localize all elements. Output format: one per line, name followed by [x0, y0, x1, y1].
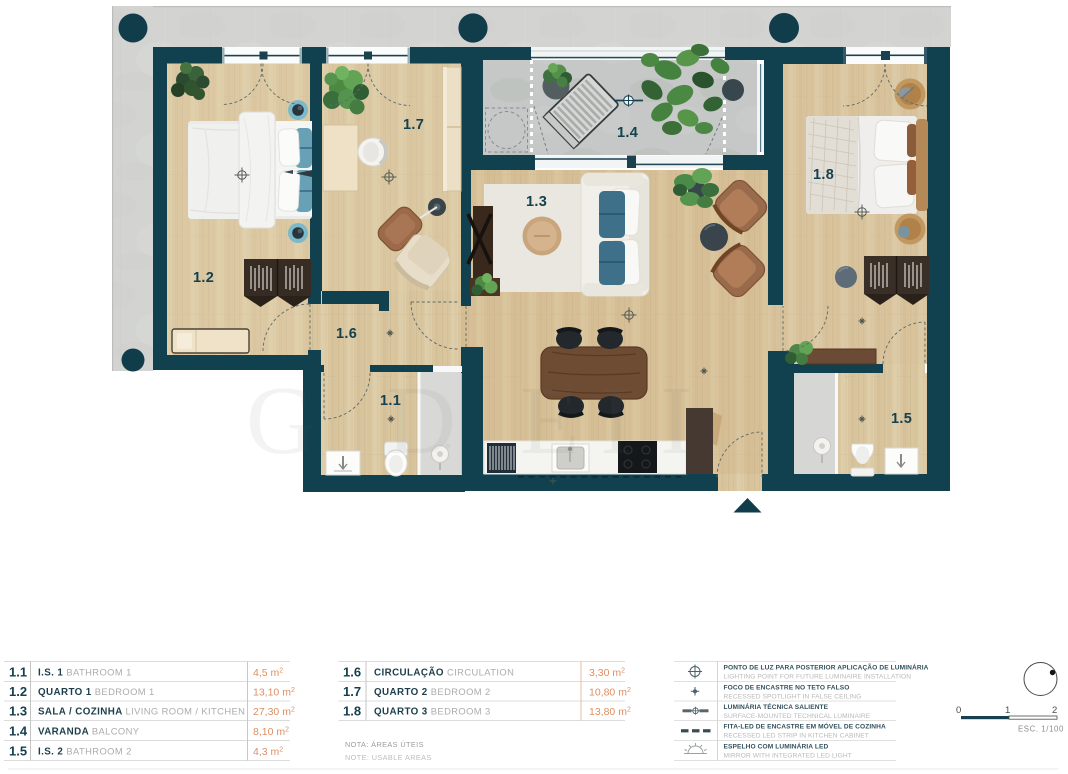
svg-text:4,5 m2: 4,5 m2 [253, 667, 283, 679]
svg-text:QUARTO 2 BEDROOM 2: QUARTO 2 BEDROOM 2 [374, 686, 491, 698]
svg-text:MIRROR WITH INTEGRATED LED LIG: MIRROR WITH INTEGRATED LED LIGHT [724, 753, 852, 760]
svg-text:1.8: 1.8 [813, 167, 834, 183]
svg-text:D: D [386, 367, 456, 474]
svg-text:I: I [600, 367, 632, 474]
svg-text:I.S. 1 BATHROOM 1: I.S. 1 BATHROOM 1 [38, 667, 132, 679]
svg-text:I.S. 2 BATHROOM 2: I.S. 2 BATHROOM 2 [38, 746, 132, 758]
svg-text:1.2: 1.2 [193, 270, 214, 286]
svg-text:1.1: 1.1 [9, 665, 27, 680]
svg-text:0: 0 [956, 705, 961, 716]
svg-text:10,80 m2: 10,80 m2 [589, 687, 631, 699]
svg-text:FITA-LED DE ENCASTRE EM MÓVEL: FITA-LED DE ENCASTRE EM MÓVEL DE COZINHA [724, 721, 887, 730]
svg-text:1.5: 1.5 [9, 744, 27, 759]
svg-text:CIRCULAÇÃO CIRCULATION: CIRCULAÇÃO CIRCULATION [374, 667, 514, 679]
svg-text:1.6: 1.6 [336, 326, 357, 342]
svg-text:LIGHTING POINT FOR FUTURE LUMI: LIGHTING POINT FOR FUTURE LUMINAIRE INST… [724, 674, 912, 681]
svg-text:1.3: 1.3 [526, 194, 547, 210]
svg-text:SALA / COZINHA LIVING ROOM / K: SALA / COZINHA LIVING ROOM / KITCHEN [38, 706, 245, 718]
svg-text:1.8: 1.8 [343, 704, 361, 719]
svg-text:NOTA: ÁREAS ÚTEIS: NOTA: ÁREAS ÚTEIS [345, 740, 424, 749]
svg-text:1.7: 1.7 [343, 684, 361, 699]
svg-text:8,10 m2: 8,10 m2 [253, 726, 289, 738]
svg-text:G: G [246, 367, 316, 474]
svg-text:PONTO DE LUZ PARA POSTERIOR AP: PONTO DE LUZ PARA POSTERIOR APLICAÇÃO DE… [724, 662, 929, 671]
svg-text:3,30 m2: 3,30 m2 [589, 667, 625, 679]
svg-text:RECESSED SPOTLIGHT IN FALSE CE: RECESSED SPOTLIGHT IN FALSE CEILING [724, 694, 862, 701]
svg-text:NOTE: USABLE AREAS: NOTE: USABLE AREAS [345, 753, 432, 762]
svg-text:27,30 m2: 27,30 m2 [253, 706, 295, 718]
svg-text:13,80 m2: 13,80 m2 [589, 706, 631, 718]
svg-text:QUARTO 3 BEDROOM 3: QUARTO 3 BEDROOM 3 [374, 706, 491, 718]
svg-text:LUMINÁRIA TÉCNICA SALIENTE: LUMINÁRIA TÉCNICA SALIENTE [724, 702, 829, 711]
svg-text:4,3 m2: 4,3 m2 [253, 746, 283, 758]
svg-text:2: 2 [1052, 705, 1057, 716]
svg-text:SURFACE-MOUNTED TECHNICAL LUMI: SURFACE-MOUNTED TECHNICAL LUMINAIRE [724, 713, 871, 720]
svg-text:ESPELHO COM LUMINÁRIA LED: ESPELHO COM LUMINÁRIA LED [724, 741, 829, 750]
svg-text:1: 1 [1005, 705, 1010, 716]
svg-text:1.2: 1.2 [9, 684, 27, 699]
svg-text:I: I [660, 367, 692, 474]
svg-text:1.6: 1.6 [343, 665, 361, 680]
svg-text:VARANDA BALCONY: VARANDA BALCONY [38, 726, 140, 738]
svg-text:13,10 m2: 13,10 m2 [253, 687, 295, 699]
svg-text:E: E [520, 367, 579, 474]
svg-text:ESC. 1/100: ESC. 1/100 [1018, 725, 1064, 734]
svg-text:1.7: 1.7 [403, 117, 424, 133]
svg-text:1.4: 1.4 [617, 125, 638, 141]
svg-text:RECESSED LED STRIP IN KITCHEN: RECESSED LED STRIP IN KITCHEN CABINET [724, 733, 869, 740]
svg-text:1.3: 1.3 [9, 704, 27, 719]
svg-text:1.4: 1.4 [9, 724, 28, 739]
svg-text:QUARTO 1 BEDROOM 1: QUARTO 1 BEDROOM 1 [38, 686, 155, 698]
svg-text:FOCO DE ENCASTRE NO TETO FALSO: FOCO DE ENCASTRE NO TETO FALSO [724, 684, 850, 691]
svg-text:1.5: 1.5 [891, 411, 912, 427]
